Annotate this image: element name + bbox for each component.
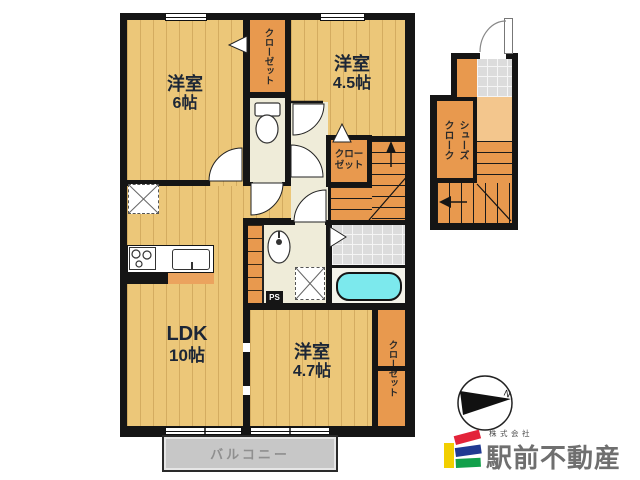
kitchen-wall-stub	[127, 273, 168, 284]
stairs-annex-lower	[437, 183, 512, 223]
annex-corner-fill	[457, 59, 477, 97]
company-name: 駅前不動産	[486, 438, 621, 475]
counter-front	[168, 273, 214, 284]
bathroom-tile-floor	[332, 225, 405, 265]
genkan-tiles	[477, 59, 512, 97]
balcony-window-bedroom3	[250, 427, 330, 435]
hallway-lower-floor	[243, 186, 291, 218]
closet-bottom-divider	[375, 366, 405, 371]
window-bedroom1	[165, 13, 207, 21]
logo-bar-red	[454, 430, 481, 445]
stairs-main-upper	[372, 141, 405, 220]
shoe-cloak: シューズ クローク	[437, 101, 473, 178]
label-bedroom3-size: 4.7帖	[293, 363, 331, 380]
toilet-room-floor	[250, 98, 285, 182]
washroom-shelf	[248, 225, 264, 303]
refrigerator-space	[128, 184, 159, 214]
label-bedroom2-size: 4.5帖	[333, 75, 371, 92]
wall-gap-1	[243, 343, 250, 352]
label-bedroom1: 洋室 6帖	[135, 74, 235, 114]
wall-gap-2	[243, 386, 250, 395]
floorplan-canvas: クローゼット クロー ゼット PS クローゼット バルコニー	[0, 0, 640, 480]
label-ldk: LDK 10帖	[137, 323, 237, 366]
closet-top: クローゼット	[250, 20, 285, 92]
balcony: バルコニー	[162, 435, 338, 472]
closet-stairs: クロー ゼット	[331, 140, 367, 182]
stairs-main-winder	[331, 187, 372, 220]
entry-opening	[480, 53, 506, 59]
pipe-space-label: PS	[269, 293, 280, 302]
bathtub	[336, 272, 402, 301]
pipe-space: PS	[266, 291, 283, 303]
logo-bar-yellow	[444, 443, 454, 468]
entry-door-leaf	[504, 18, 513, 54]
genkan-step	[477, 97, 512, 141]
door-opening-toilet	[253, 182, 282, 186]
logo-bar-blue	[455, 444, 482, 457]
compass-icon: N	[458, 376, 512, 430]
logo-bar-green	[456, 458, 481, 468]
label-bedroom3: 洋室 4.7帖	[262, 342, 362, 382]
stairs-annex-upper	[477, 141, 512, 183]
label-bedroom3-name: 洋室	[294, 342, 330, 362]
closet-top-label: クローゼット	[261, 28, 275, 85]
stove	[129, 247, 156, 270]
shoe-cloak-label-2: クローク	[440, 120, 455, 160]
label-ldk-size: 10帖	[169, 346, 205, 365]
label-bedroom1-size: 6帖	[173, 95, 198, 112]
kitchen-sink	[172, 249, 210, 270]
compass-north-label: N	[502, 388, 512, 400]
room-ldk-floor	[127, 186, 243, 426]
shoe-cloak-label-1: シューズ	[455, 120, 470, 160]
label-bedroom2-name: 洋室	[334, 54, 370, 74]
hallway-floor	[291, 102, 328, 220]
balcony-label: バルコニー	[210, 444, 290, 463]
washing-machine-space	[295, 267, 325, 300]
window-bedroom2	[320, 13, 365, 21]
closet-stairs-label-2: ゼット	[335, 160, 364, 171]
entry-door-arc	[480, 21, 506, 52]
closet-stairs-label-1: クロー	[335, 149, 364, 160]
label-ldk-name: LDK	[166, 323, 207, 345]
balcony-window-ldk	[165, 427, 242, 435]
door-opening-washroom	[295, 218, 325, 225]
label-bedroom1-name: 洋室	[167, 74, 203, 94]
label-bedroom2: 洋室 4.5帖	[302, 54, 402, 94]
